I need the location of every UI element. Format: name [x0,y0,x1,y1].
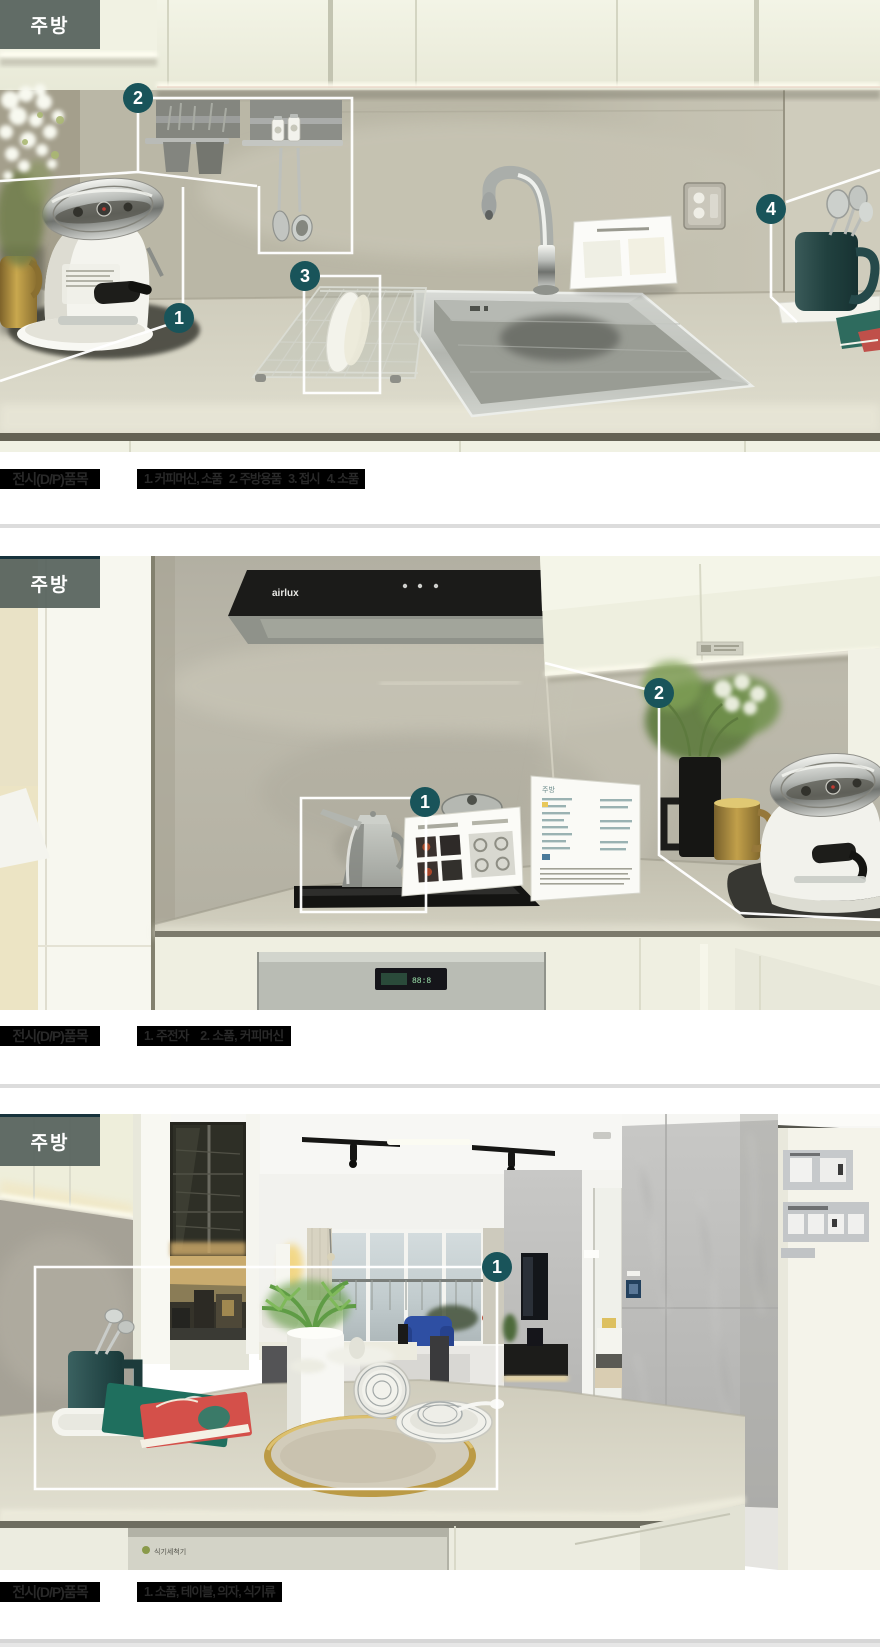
svg-text:2: 2 [133,88,143,108]
svg-text:airlux: airlux [272,588,299,599]
svg-text:식기세척기: 식기세척기 [154,1547,186,1556]
svg-text:88:8: 88:8 [412,977,431,986]
svg-text:2: 2 [654,683,664,703]
svg-text:1: 1 [492,1257,502,1277]
svg-text:주방: 주방 [542,785,555,794]
svg-text:4: 4 [766,199,776,219]
svg-text:1: 1 [420,792,430,812]
svg-text:3: 3 [300,266,310,286]
svg-text:1: 1 [174,308,184,328]
